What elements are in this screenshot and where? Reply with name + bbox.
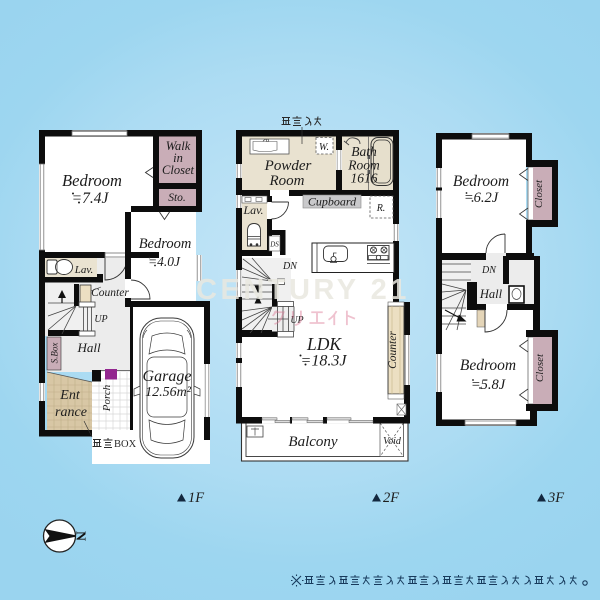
svg-text:DN: DN bbox=[481, 265, 497, 276]
svg-text:S.Box: S.Box bbox=[50, 343, 60, 364]
svg-text:W.: W. bbox=[319, 142, 329, 153]
svg-text:UP: UP bbox=[94, 314, 107, 325]
svg-text:Bedroom: Bedroom bbox=[453, 173, 509, 190]
svg-text:Balcony: Balcony bbox=[288, 434, 337, 450]
svg-text:DS: DS bbox=[269, 241, 279, 249]
svg-text:rance: rance bbox=[55, 405, 87, 420]
svg-text:Counter: Counter bbox=[387, 331, 399, 369]
svg-text:LDK: LDK bbox=[306, 334, 342, 354]
svg-text:Hall: Hall bbox=[479, 287, 503, 301]
svg-text:Powder: Powder bbox=[264, 158, 312, 174]
svg-text:1F: 1F bbox=[188, 490, 204, 506]
svg-text:3F: 3F bbox=[547, 490, 564, 506]
svg-text:Void: Void bbox=[383, 436, 402, 447]
svg-text:=4.0J: =4.0J bbox=[148, 254, 181, 269]
svg-text:=18.3J: =18.3J bbox=[301, 353, 348, 370]
svg-text:=7.4J: =7.4J bbox=[72, 190, 110, 207]
svg-text:BOX: BOX bbox=[114, 439, 137, 450]
svg-text:Counter: Counter bbox=[91, 287, 129, 299]
svg-text:Bedroom: Bedroom bbox=[139, 236, 192, 252]
svg-text:12.56m²: 12.56m² bbox=[145, 385, 192, 400]
svg-text:Garage: Garage bbox=[143, 368, 192, 385]
svg-text:=5.8J: =5.8J bbox=[471, 377, 506, 393]
svg-text:2F: 2F bbox=[383, 490, 399, 506]
svg-text:Closet: Closet bbox=[162, 163, 194, 177]
svg-text:Ent: Ent bbox=[59, 388, 81, 403]
svg-text:DN: DN bbox=[282, 261, 298, 272]
svg-text:Porch: Porch bbox=[101, 384, 113, 412]
svg-text:Hall: Hall bbox=[76, 340, 101, 355]
svg-text:R.: R. bbox=[376, 203, 386, 214]
svg-text:Lav.: Lav. bbox=[74, 264, 93, 276]
svg-text:Closet: Closet bbox=[534, 353, 546, 382]
svg-text:CENTURY 21: CENTURY 21 bbox=[196, 274, 410, 306]
svg-text:=6.2J: =6.2J bbox=[464, 190, 499, 206]
svg-text:Closet: Closet bbox=[533, 179, 545, 208]
svg-text:Bedroom: Bedroom bbox=[460, 357, 516, 374]
svg-text:Room: Room bbox=[269, 173, 305, 189]
svg-text:Sto.: Sto. bbox=[168, 192, 186, 204]
svg-text:Cupboard: Cupboard bbox=[308, 195, 357, 209]
svg-text:Lav.: Lav. bbox=[242, 203, 263, 217]
svg-text:Bedroom: Bedroom bbox=[62, 171, 122, 190]
svg-text:1616: 1616 bbox=[351, 171, 378, 186]
svg-text:N: N bbox=[74, 531, 89, 541]
